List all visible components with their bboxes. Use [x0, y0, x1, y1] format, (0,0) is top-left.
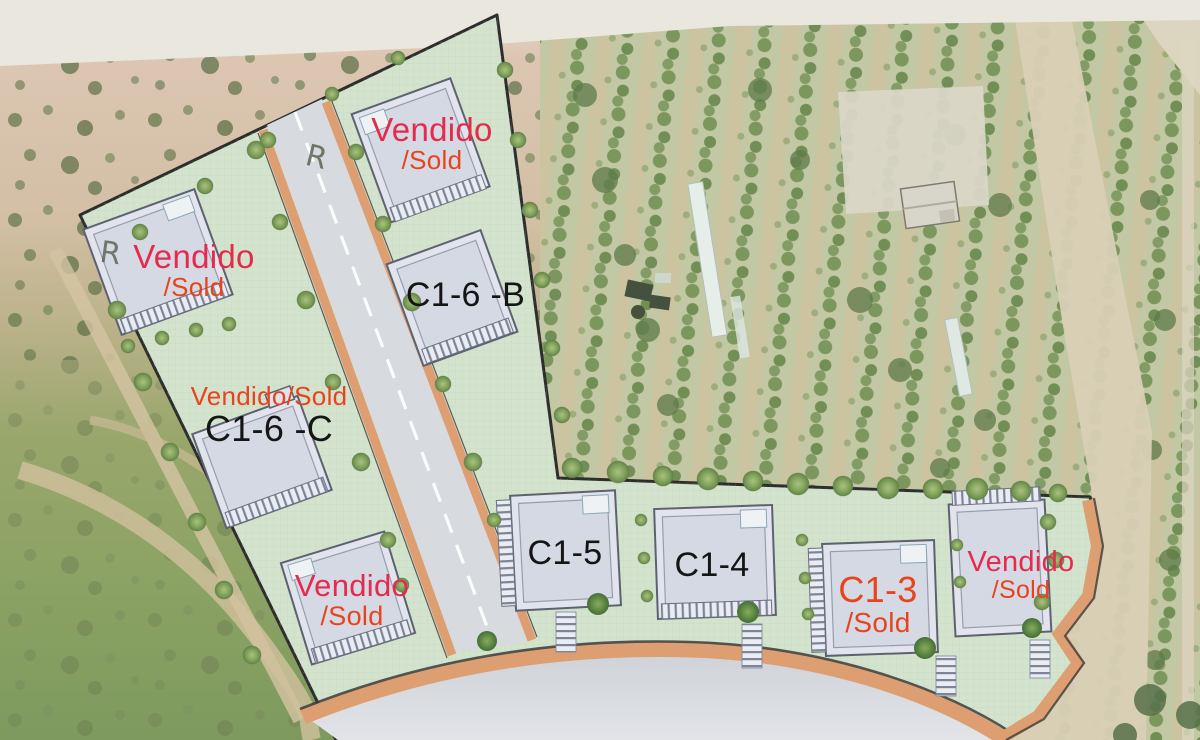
plot-code: C1-6 -C — [178, 410, 360, 447]
plot-code: C1-6 -B — [383, 278, 548, 313]
plot-label-c1-4: C1-4 — [648, 548, 776, 583]
plot-label-north-villa: Vendido /Sold — [352, 113, 512, 174]
sold-subtext: /Sold — [276, 602, 428, 630]
plot-label-east-villa: Vendido /Sold — [946, 547, 1096, 603]
plot-code: C1-3 — [810, 571, 946, 608]
plot-code: C1-5 — [504, 536, 626, 571]
sold-subtext: /Sold — [946, 577, 1096, 603]
plot-label-c1-3: C1-3 /Sold — [810, 571, 946, 638]
sold-subtext: /Sold — [810, 608, 946, 637]
sold-text: Vendido/Sold — [178, 383, 360, 410]
plot-label-c1-6-c: Vendido/Sold C1-6 -C — [178, 383, 360, 447]
plot-label-west-villa: Vendido /Sold — [114, 240, 274, 301]
farm-house — [900, 181, 959, 228]
sold-text: Vendido — [276, 570, 428, 602]
plot-label-southwest-villa: Vendido /Sold — [276, 570, 428, 630]
sold-text: Vendido — [946, 547, 1096, 577]
sold-text: Vendido — [114, 240, 274, 274]
map-canvas — [0, 0, 1200, 740]
plot-code: C1-4 — [648, 548, 776, 583]
sold-subtext: /Sold — [352, 147, 512, 174]
sold-text: Vendido — [352, 113, 512, 147]
plot-label-c1-5: C1-5 — [504, 536, 626, 571]
sold-subtext: /Sold — [114, 274, 274, 301]
site-plan-map: Vendido /Sold Vendido /Sold C1-6 -B Vend… — [0, 0, 1200, 740]
plot-label-c1-6-b: C1-6 -B — [383, 278, 548, 313]
